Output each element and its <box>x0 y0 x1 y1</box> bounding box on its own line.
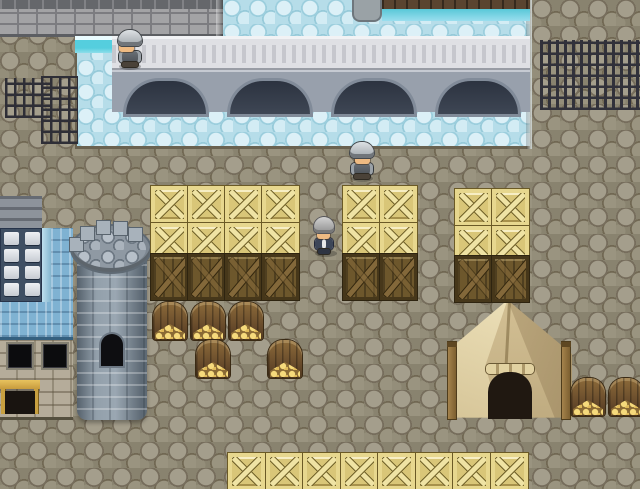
tower-merlon <box>114 222 127 235</box>
light-wooden-crate[interactable] <box>266 453 303 489</box>
light-wooden-crate[interactable] <box>188 186 225 223</box>
building-window <box>43 344 67 368</box>
light-wooden-crate[interactable] <box>491 453 528 489</box>
villager-hair <box>314 217 334 233</box>
shop-awning <box>0 380 40 389</box>
skylight-tile <box>4 249 19 262</box>
light-wooden-crate[interactable] <box>380 186 417 223</box>
grain-bin[interactable] <box>196 340 230 378</box>
tower-merlon <box>97 221 110 234</box>
tower-window <box>101 334 123 366</box>
dark-wooden-crate[interactable] <box>225 254 262 300</box>
grain-bin[interactable] <box>571 378 605 416</box>
light-wooden-crate[interactable] <box>343 186 380 223</box>
light-wooden-crate[interactable] <box>378 453 415 489</box>
light-wooden-crate[interactable] <box>228 453 265 489</box>
dark-wooden-crate[interactable] <box>492 256 529 302</box>
gold-pile <box>573 400 603 415</box>
villager-legs <box>318 249 330 254</box>
light-wooden-crate[interactable] <box>151 186 188 223</box>
stone-wall-edge <box>216 0 223 37</box>
blue-roof <box>0 302 51 340</box>
dock-waterline <box>382 9 530 21</box>
tower-merlon <box>81 227 94 240</box>
tent-post <box>448 342 456 419</box>
roof-eave <box>42 228 51 310</box>
soldier-on-bridge[interactable] <box>116 30 144 68</box>
game-viewport[interactable] <box>0 0 640 489</box>
light-wooden-crate[interactable] <box>453 453 490 489</box>
light-wooden-crate[interactable] <box>303 453 340 489</box>
building-window <box>8 344 32 368</box>
river-bank-edge <box>75 36 112 53</box>
tent-post <box>562 342 570 419</box>
grain-bin[interactable] <box>153 302 187 340</box>
skylight-tile <box>4 283 19 296</box>
soldier-helmet <box>350 142 374 158</box>
skylight-tile <box>25 249 40 262</box>
skylight-tile <box>25 283 40 296</box>
dark-wooden-crate[interactable] <box>343 254 380 300</box>
tent-opening[interactable] <box>488 372 532 419</box>
gold-pile <box>198 362 228 377</box>
gold-pile <box>231 324 261 339</box>
gray-shingle-roof <box>0 196 42 232</box>
gold-pile <box>270 362 300 377</box>
grain-bin[interactable] <box>609 378 640 416</box>
bridge-arch <box>230 81 310 114</box>
grain-bin[interactable] <box>268 340 302 378</box>
skylight-tile <box>25 232 40 245</box>
skylight-tile <box>25 266 40 279</box>
building-doorway[interactable] <box>5 391 35 414</box>
light-wooden-crate[interactable] <box>341 453 378 489</box>
grain-bin[interactable] <box>229 302 263 340</box>
soldier-by-crates[interactable] <box>348 142 376 180</box>
light-wooden-crate[interactable] <box>455 189 492 226</box>
bridge-arch <box>126 81 206 114</box>
bridge-deck <box>112 36 530 72</box>
gold-pile <box>611 400 640 415</box>
gold-pile <box>193 324 223 339</box>
soldier-legs <box>122 62 138 67</box>
bridge-arch <box>334 81 414 114</box>
skylight-tile <box>4 266 19 279</box>
building-facade-windows <box>0 228 42 302</box>
dark-wooden-crate[interactable] <box>455 256 492 302</box>
skylight-tile <box>4 232 19 245</box>
bridge-arches <box>112 70 530 112</box>
dark-wooden-crate[interactable] <box>188 254 225 300</box>
iron-fence <box>540 40 640 110</box>
grain-bin[interactable] <box>191 302 225 340</box>
light-wooden-crate[interactable] <box>416 453 453 489</box>
dark-wooden-crate[interactable] <box>262 254 299 300</box>
tower-merlon <box>129 228 142 241</box>
iron-grate <box>41 76 78 144</box>
light-wooden-crate[interactable] <box>225 186 262 223</box>
stone-wall-cap <box>0 0 223 9</box>
gray-haired-villager[interactable] <box>312 217 336 255</box>
dark-wooden-crate[interactable] <box>151 254 188 300</box>
wooden-dock <box>382 0 530 9</box>
soldier-helmet <box>118 30 142 46</box>
soldier-legs <box>354 174 370 179</box>
light-wooden-crate[interactable] <box>262 186 299 223</box>
light-wooden-crate[interactable] <box>492 189 529 226</box>
gold-pile <box>155 324 185 339</box>
bridge-arch <box>438 81 518 114</box>
dark-wooden-crate[interactable] <box>380 254 417 300</box>
dock-stone-block <box>352 0 382 22</box>
